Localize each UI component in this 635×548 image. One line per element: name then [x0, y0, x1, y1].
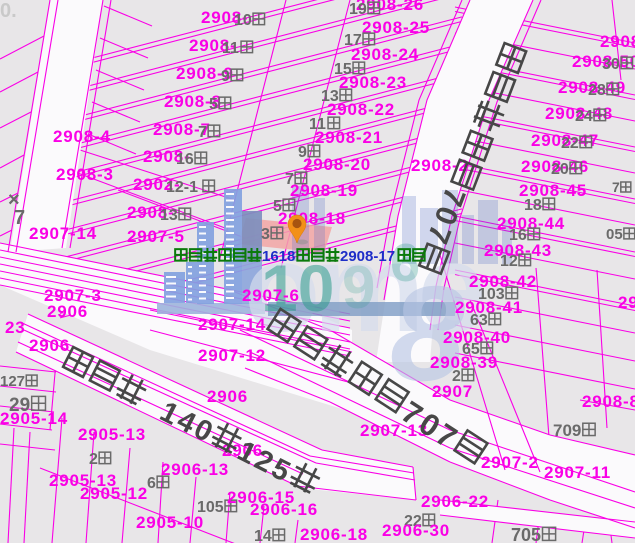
svg-text:30: 30 [602, 56, 620, 73]
svg-text:2908-25: 2908-25 [362, 18, 430, 37]
svg-text:2907-6: 2907-6 [242, 286, 300, 305]
svg-text:14: 14 [254, 528, 272, 543]
svg-text:16: 16 [176, 151, 194, 168]
svg-text:2908-8: 2908-8 [582, 392, 635, 411]
svg-text:2908-21: 2908-21 [315, 128, 383, 147]
svg-text:22: 22 [561, 135, 579, 152]
svg-text:2906: 2906 [47, 302, 88, 321]
svg-text:709: 709 [553, 421, 581, 440]
svg-text:63: 63 [470, 312, 488, 329]
svg-text:2908-19: 2908-19 [290, 181, 358, 200]
svg-text:127: 127 [0, 373, 25, 390]
svg-text:2906: 2906 [207, 387, 248, 406]
svg-text:23: 23 [5, 318, 26, 337]
svg-text:290: 290 [618, 293, 635, 312]
svg-text:2907: 2907 [432, 382, 473, 401]
svg-text:2906-13: 2906-13 [161, 460, 229, 479]
svg-text:705: 705 [511, 525, 541, 543]
svg-text:11: 11 [222, 40, 239, 57]
svg-text:2905-14: 2905-14 [0, 409, 68, 428]
svg-text:2907-12: 2907-12 [198, 346, 266, 365]
svg-text:2907-14: 2907-14 [198, 315, 266, 334]
svg-text:6: 6 [147, 475, 156, 492]
svg-text:05: 05 [606, 226, 623, 243]
svg-text:2905-10: 2905-10 [136, 513, 204, 532]
svg-text:7: 7 [198, 124, 207, 141]
svg-text:2908-43: 2908-43 [484, 241, 552, 260]
svg-text:2905-13: 2905-13 [78, 425, 146, 444]
svg-text:12-1: 12-1 [166, 179, 198, 196]
svg-text:2907-14: 2907-14 [29, 224, 97, 243]
svg-text:5: 5 [209, 96, 218, 113]
svg-text:2908: 2908 [600, 32, 635, 51]
svg-text:1618: 1618 [262, 248, 295, 265]
svg-text:10: 10 [234, 12, 252, 29]
svg-text:2908-22: 2908-22 [327, 100, 395, 119]
svg-text:2908-17: 2908-17 [340, 248, 395, 265]
svg-text:2908-4: 2908-4 [53, 127, 111, 146]
svg-text:105: 105 [197, 499, 224, 516]
svg-text:2908-44: 2908-44 [497, 214, 565, 233]
svg-text:2908-20: 2908-20 [303, 155, 371, 174]
svg-text:19: 19 [349, 1, 367, 18]
svg-text:2906: 2906 [29, 336, 70, 355]
svg-text:9: 9 [221, 68, 230, 85]
svg-text:0.: 0. [0, 0, 17, 22]
svg-text:3: 3 [261, 226, 270, 243]
svg-text:2: 2 [89, 451, 98, 468]
svg-text:2908-3: 2908-3 [56, 165, 114, 184]
svg-text:24: 24 [575, 108, 593, 125]
svg-text:28: 28 [588, 82, 606, 99]
svg-text:2908-24: 2908-24 [351, 45, 419, 64]
svg-text:2906-22: 2906-22 [421, 492, 489, 511]
svg-text:2906-18: 2906-18 [300, 525, 368, 543]
svg-text:20: 20 [551, 161, 569, 178]
svg-text:12: 12 [500, 253, 518, 270]
svg-text:2907-5: 2907-5 [127, 227, 185, 246]
svg-text:2907-2: 2907-2 [481, 453, 539, 472]
svg-text:7: 7 [612, 179, 620, 195]
svg-text:7: 7 [14, 207, 25, 229]
svg-text:18: 18 [524, 197, 542, 214]
svg-text:2905-12: 2905-12 [80, 484, 148, 503]
svg-text:2906-30: 2906-30 [382, 521, 450, 540]
svg-text:2906-16: 2906-16 [250, 500, 318, 519]
svg-text:2907-11: 2907-11 [544, 463, 611, 482]
svg-text:13: 13 [160, 207, 178, 224]
